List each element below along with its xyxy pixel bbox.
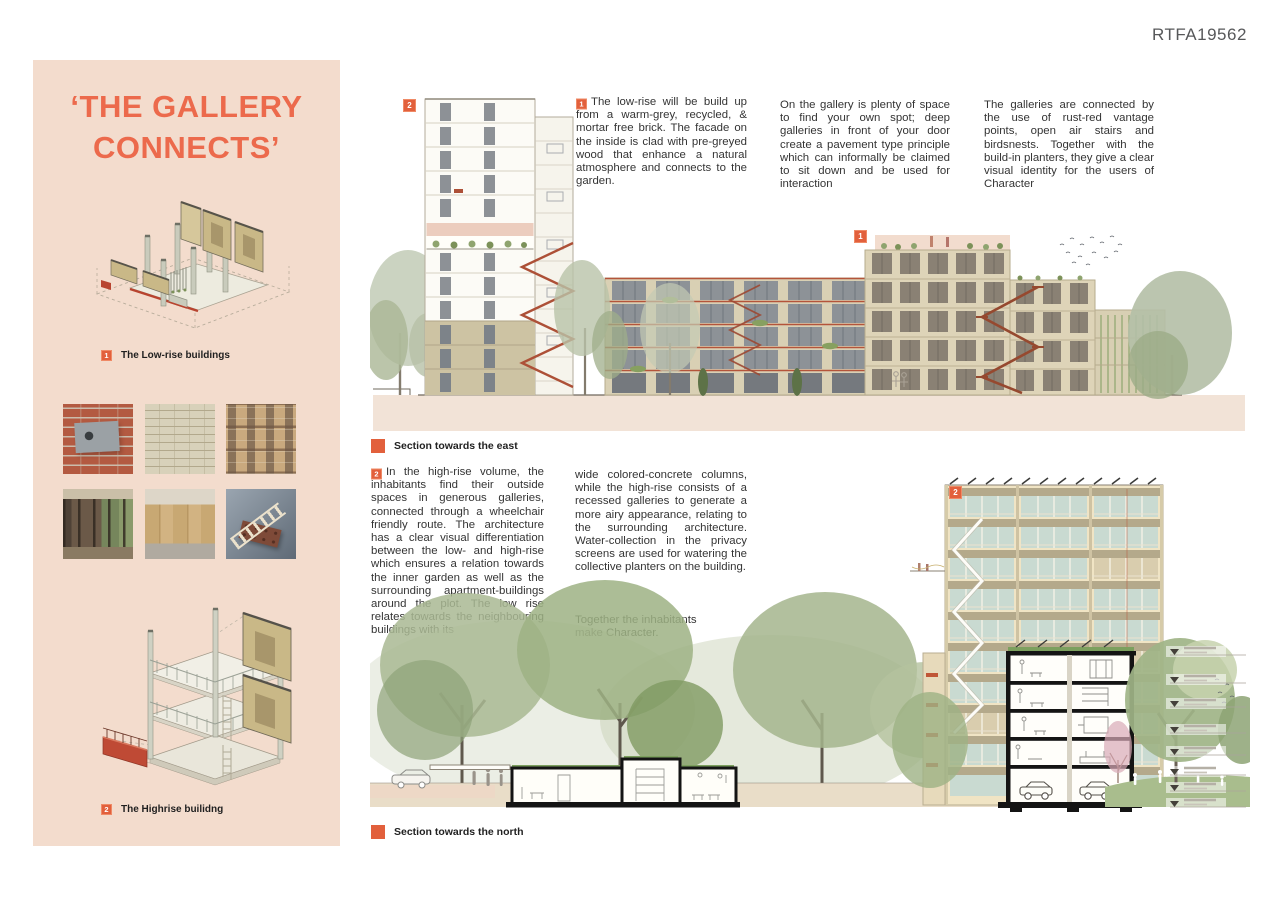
paragraph-gallery-identity: The galleries are connected by the use o… [984,99,1154,191]
num-badge-highrise: 2 [101,804,112,815]
red-balcony-element [103,728,147,767]
highrise-axonometric-drawing [95,595,313,800]
legend-item-highrise: 2 The Highrise builidng [101,804,223,815]
photo-gallery-corridor [63,489,133,559]
red-bench-element [101,280,111,290]
midrise-block-b [865,235,1165,395]
solar-panels [950,478,1156,484]
foreground-tree [892,692,968,788]
legend-item-lowrise: 1 The Low-rise buildings [101,350,230,361]
section-east-square [371,439,385,453]
paragraph-gallery-space: On the gallery is plenty of space to fin… [780,99,950,191]
section-east-text: Section towards the east [394,440,518,452]
ground-band [373,395,1245,431]
num-badge-lowrise: 1 [101,350,112,361]
tree-right [1128,271,1232,399]
paragraph-lowrise: 1The low-rise will be build up from a wa… [576,96,747,188]
marker-lowrise-east: 1 [854,230,867,243]
legend-lowrise-label: The Low-rise buildings [121,350,230,361]
lowrise-axonometric-drawing [85,196,305,348]
photo-timber-balconies [226,404,296,474]
photo-brick-texture [145,404,215,474]
board-id: RTFA19562 [1152,25,1242,45]
tall-building [425,99,573,395]
num-badge-1: 1 [576,99,587,110]
board-title-line1: ‘THE GALLERY [33,86,340,127]
section-label-east: Section towards the east [371,439,518,453]
photo-wood-interior [145,489,215,559]
section-north-text: Section towards the north [394,826,524,838]
section-label-north: Section towards the north [371,825,524,839]
presentation-board: { "board_id": "RTFA19562", "colors": { "… [0,0,1273,900]
birds-flock [1060,236,1122,265]
photo-brick-ladder-model [226,489,296,559]
board-title: ‘THE GALLERY CONNECTS’ [33,86,340,168]
canopy [430,765,510,770]
materials-photo-grid [63,404,296,559]
sidebar-panel: ‘THE GALLERY CONNECTS’ [33,60,340,846]
north-section-drawing [370,475,1250,820]
photo-brick-plaque [63,404,133,474]
board-title-line2: CONNECTS’ [33,127,340,168]
section-north-square [371,825,385,839]
marker-highrise-north: 2 [949,486,962,499]
marker-tall-building-east: 2 [403,99,416,112]
legend-highrise-label: The Highrise builidng [121,804,223,815]
